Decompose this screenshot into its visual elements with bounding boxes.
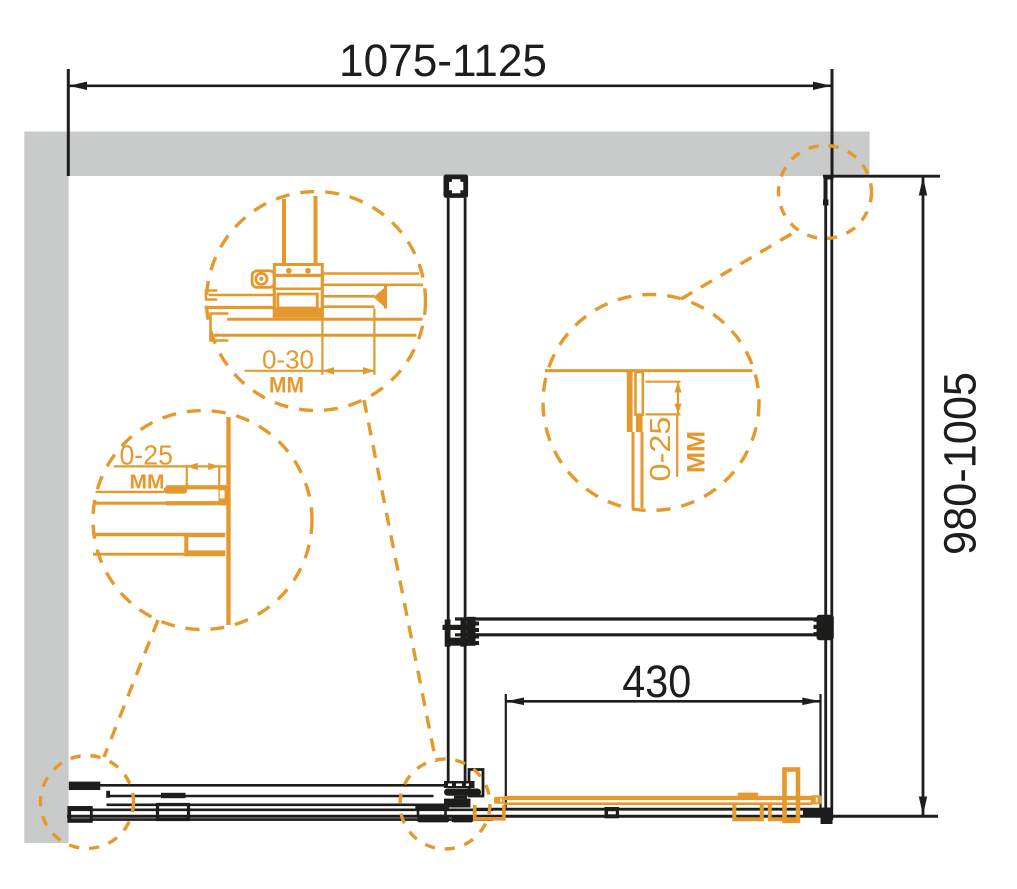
svg-text:1075-1125: 1075-1125 [339, 35, 547, 86]
svg-text:0-25: 0-25 [645, 417, 677, 482]
svg-text:0-25: 0-25 [119, 439, 173, 470]
svg-text:MM: MM [683, 431, 711, 473]
svg-text:MM: MM [130, 471, 165, 493]
svg-text:430: 430 [622, 656, 691, 707]
svg-text:MM: MM [269, 373, 304, 398]
svg-text:0-30: 0-30 [262, 344, 314, 374]
svg-text:980-1005: 980-1005 [935, 372, 986, 555]
